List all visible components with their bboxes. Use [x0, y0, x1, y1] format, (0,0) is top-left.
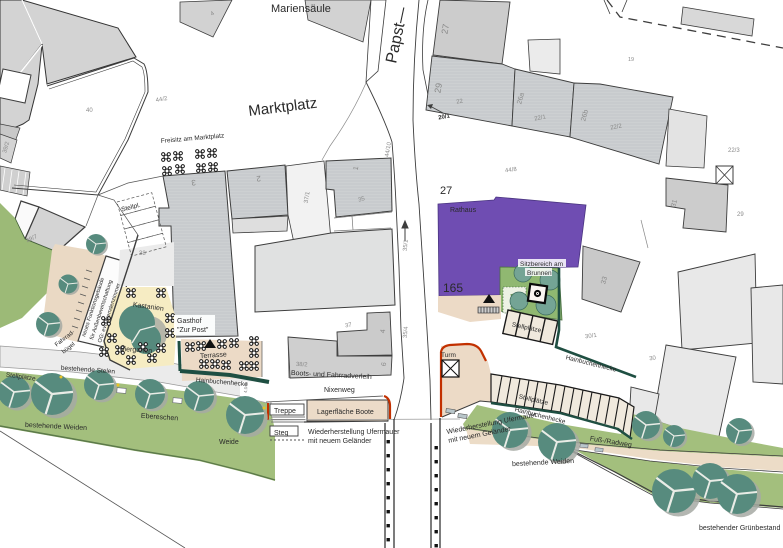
svg-text:22/3: 22/3	[728, 148, 740, 154]
svg-text:Steg: Steg	[274, 430, 289, 437]
svg-text:Rathaus: Rathaus	[450, 207, 477, 214]
svg-text:19: 19	[628, 57, 634, 63]
svg-text:4,0 m: 4,0 m	[243, 381, 249, 393]
svg-text:Gasthof: Gasthof	[177, 318, 202, 325]
svg-text:Weide: Weide	[219, 439, 239, 446]
svg-text:Brunnen: Brunnen	[527, 270, 552, 277]
svg-text:bestehender Grünbestand: bestehender Grünbestand	[699, 525, 780, 532]
svg-text:27: 27	[440, 185, 452, 197]
svg-text:35/4: 35/4	[403, 326, 410, 339]
svg-text:38/2: 38/2	[296, 362, 309, 369]
svg-text:Lagerfläche Boote: Lagerfläche Boote	[317, 409, 374, 416]
svg-text:29: 29	[433, 82, 445, 94]
svg-text:Mariensäule: Mariensäule	[271, 3, 331, 15]
svg-text:mit neuem Geländer: mit neuem Geländer	[308, 438, 372, 445]
svg-text:Nixenweg: Nixenweg	[324, 387, 355, 394]
svg-text:Treppe: Treppe	[274, 408, 296, 415]
svg-text:27: 27	[440, 23, 452, 35]
svg-text:35/1: 35/1	[403, 239, 410, 252]
svg-text:165: 165	[443, 281, 463, 295]
svg-text:Sitzbereich am: Sitzbereich am	[520, 261, 563, 268]
svg-text:"Zur Post": "Zur Post"	[177, 327, 209, 334]
svg-text:Wiederherstellung Ufermauer: Wiederherstellung Ufermauer	[308, 429, 400, 436]
svg-text:29: 29	[737, 212, 744, 218]
svg-text:Turm: Turm	[441, 352, 456, 359]
svg-text:38: 38	[139, 251, 146, 257]
svg-text:40: 40	[86, 108, 93, 114]
